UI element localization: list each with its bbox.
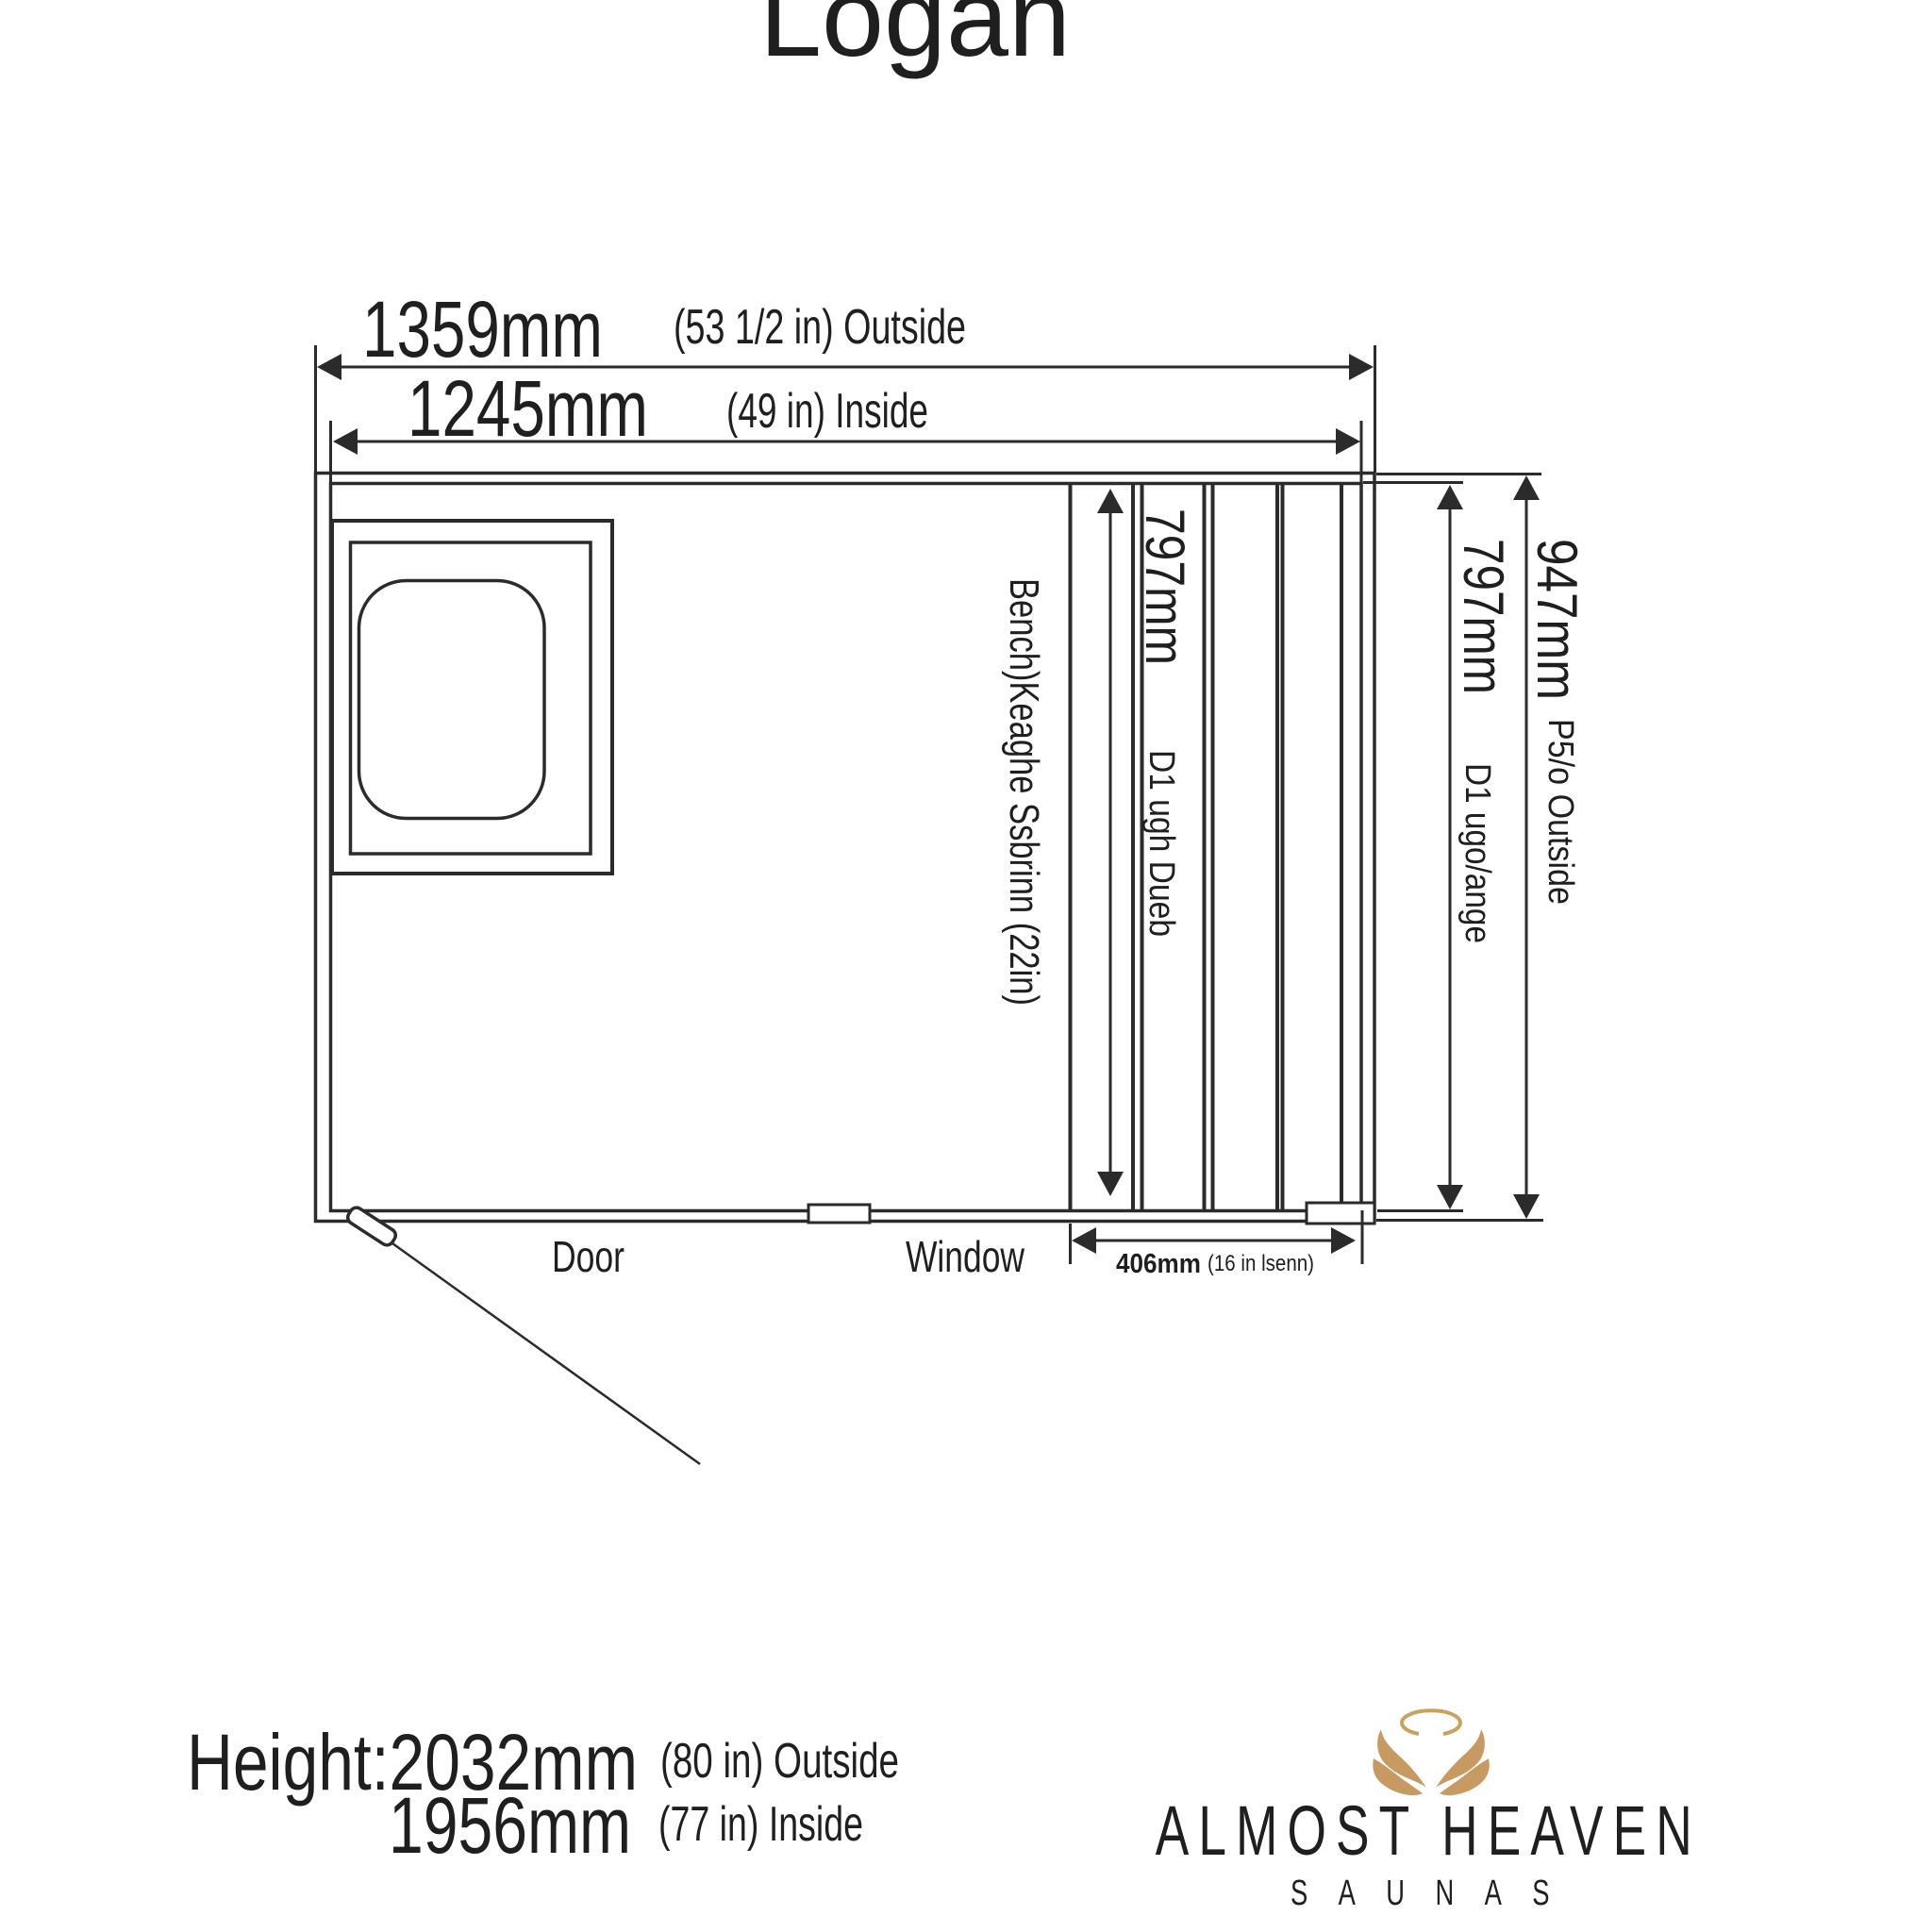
svg-text:SAUNAS: SAUNAS (1291, 1874, 1580, 1913)
svg-text:(49 in) Inside: (49 in) Inside (726, 384, 928, 439)
svg-text:D1 ugo/ange: D1 ugo/ange (1457, 763, 1497, 943)
svg-text:Bench)Keaghe Ssbrinn (22in): Bench)Keaghe Ssbrinn (22in) (1001, 578, 1047, 1006)
svg-text:(80 in) Outside: (80 in) Outside (660, 1734, 899, 1789)
svg-text:1956mm: 1956mm (389, 1781, 631, 1870)
svg-text:(77 in) Inside: (77 in) Inside (658, 1797, 863, 1852)
svg-text:Logan: Logan (759, 0, 1071, 80)
svg-text:797mm: 797mm (1452, 539, 1515, 694)
svg-text:D1 ugh Dueb: D1 ugh Dueb (1141, 750, 1181, 937)
svg-text:1359mm: 1359mm (362, 285, 603, 374)
svg-text:1245mm: 1245mm (408, 364, 648, 453)
svg-text:406mm: 406mm (1116, 1249, 1201, 1279)
svg-text:(53 1/2 in) Outside: (53 1/2 in) Outside (674, 300, 966, 355)
svg-text:P5/o Outside: P5/o Outside (1541, 719, 1580, 905)
svg-text:797mm: 797mm (1134, 508, 1195, 665)
svg-text:(16 in lsenn): (16 in lsenn) (1207, 1251, 1314, 1276)
svg-text:947mm: 947mm (1525, 539, 1589, 700)
svg-text:ALMOST HEAVEN: ALMOST HEAVEN (1156, 1791, 1702, 1870)
svg-text:Window: Window (906, 1232, 1025, 1281)
svg-text:Door: Door (552, 1232, 625, 1281)
